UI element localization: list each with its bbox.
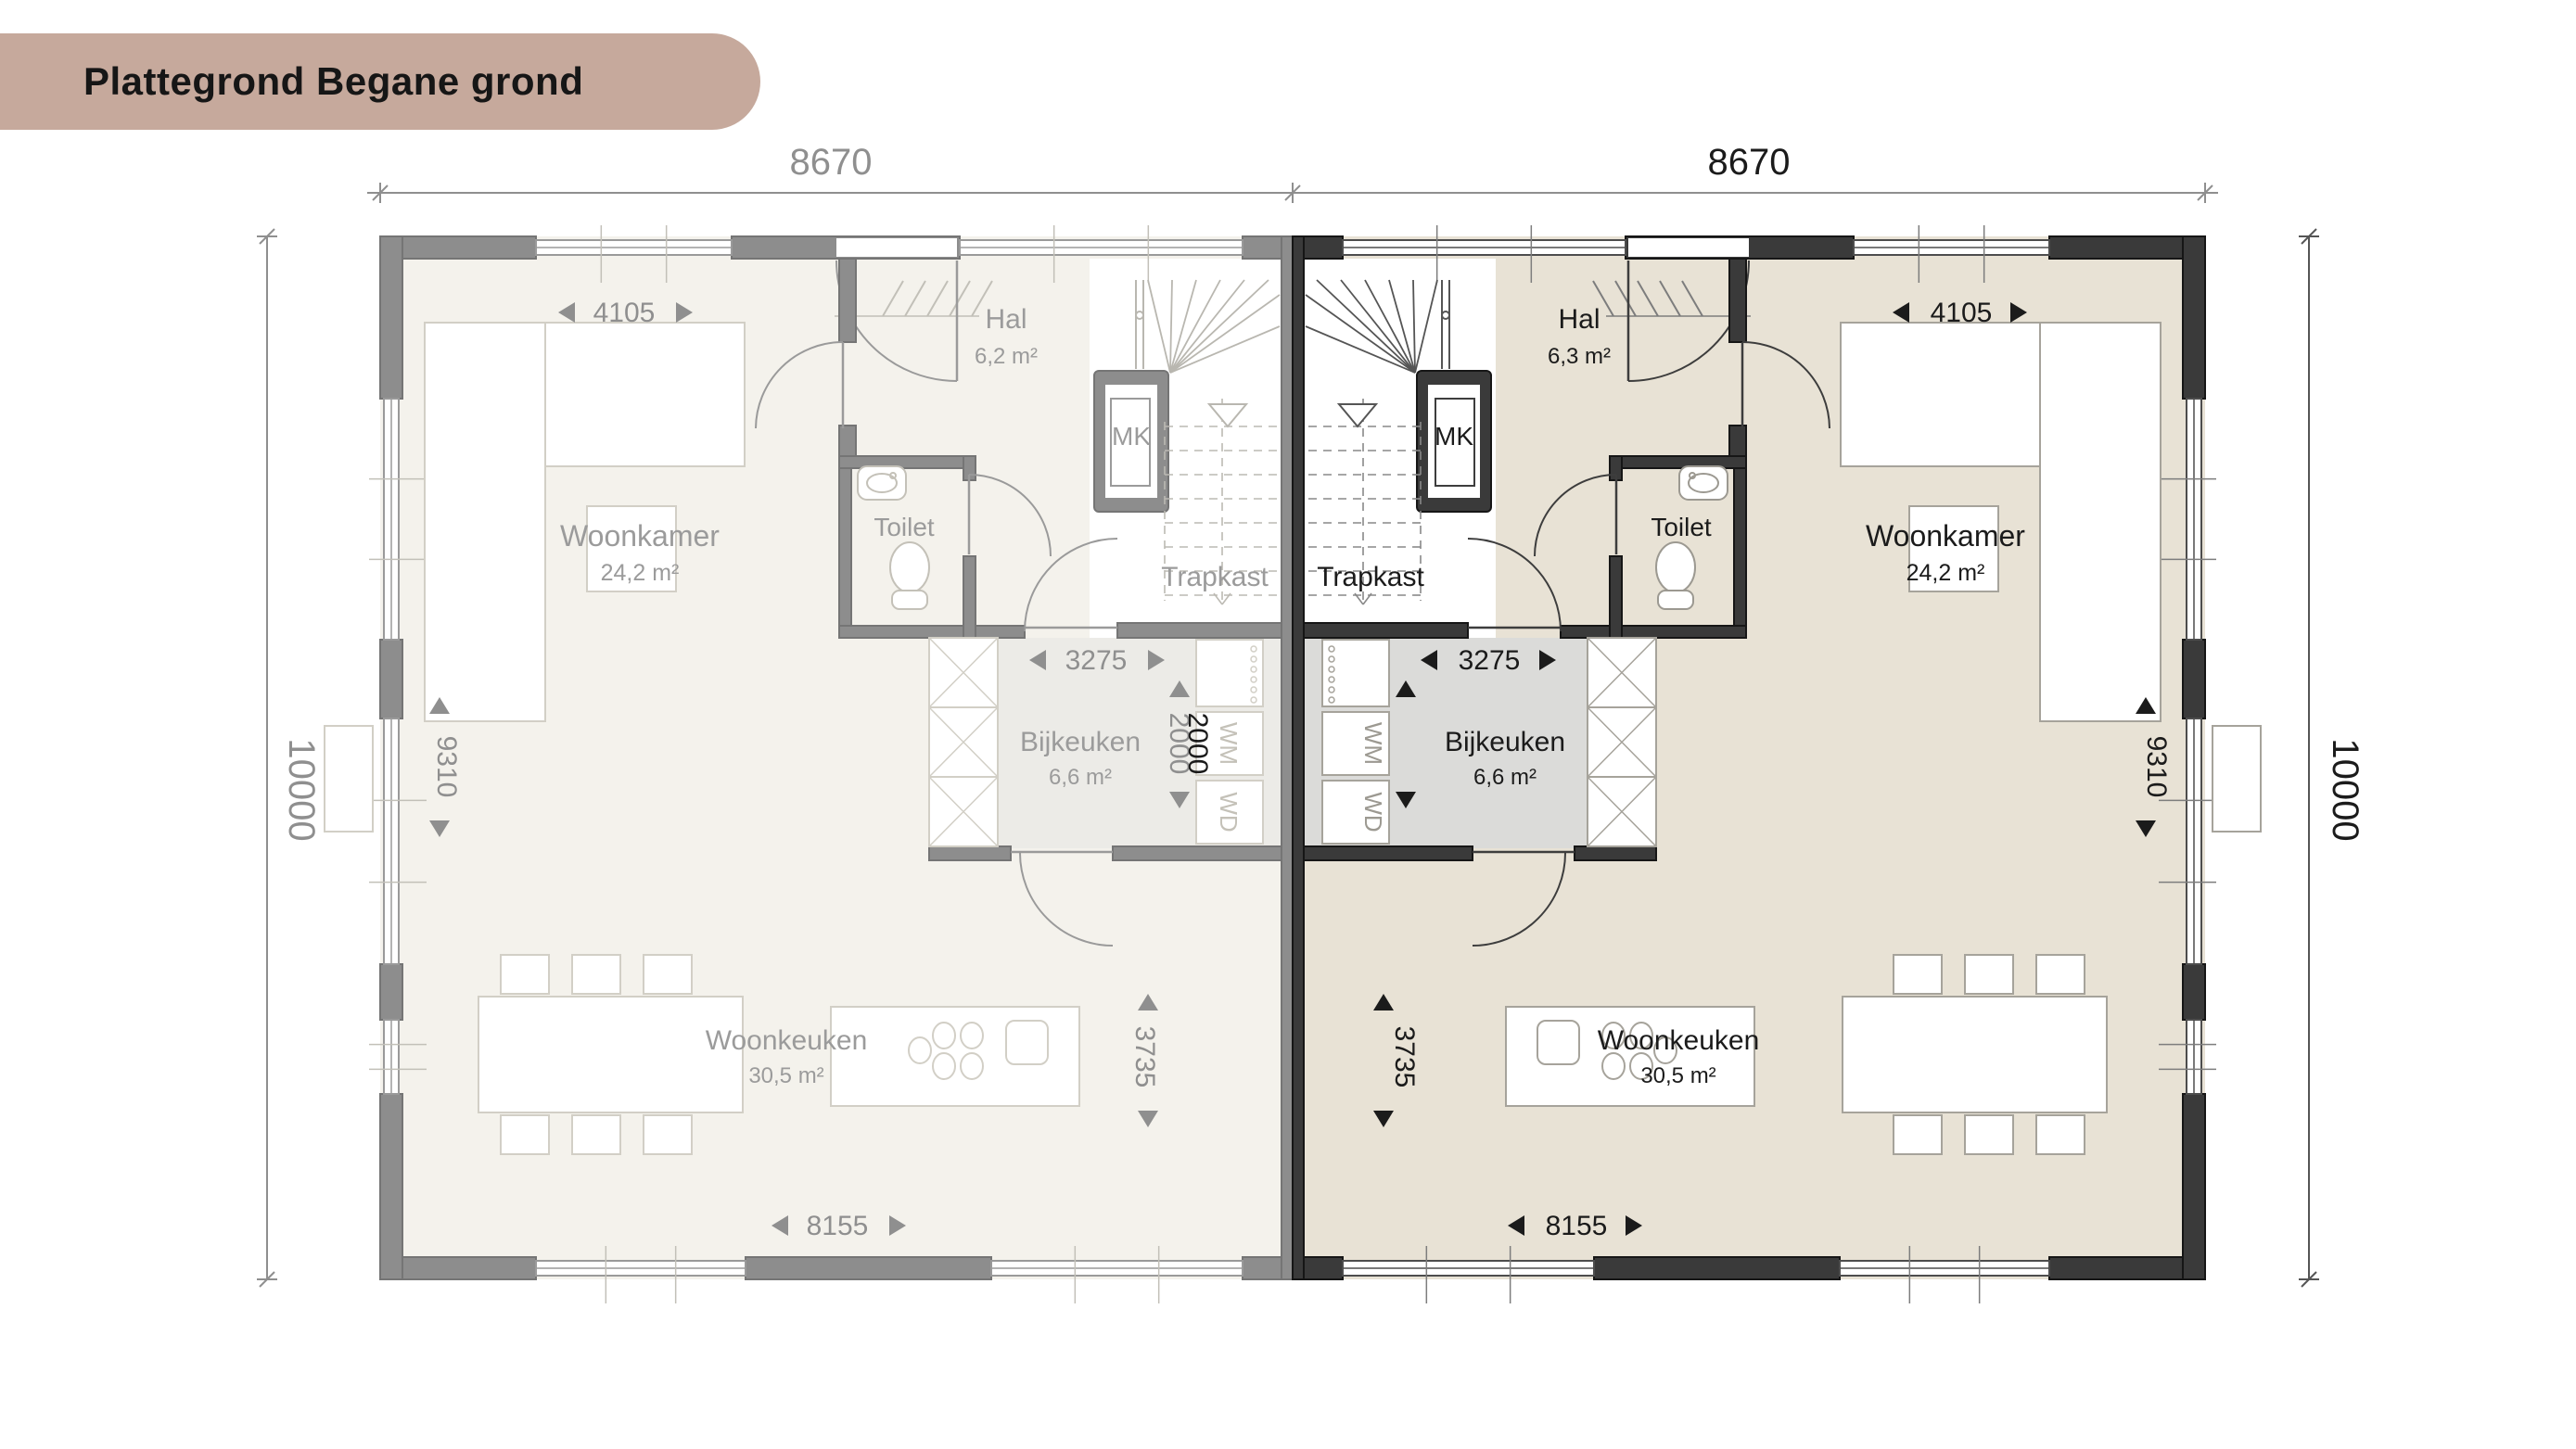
wall-segment bbox=[1594, 1257, 1840, 1279]
left-house: ToiletMKWMWDHal6,2 m²TrapkastWoonkamer24… bbox=[325, 225, 1293, 1303]
wall-segment bbox=[1243, 236, 1282, 259]
wall-segment bbox=[2183, 236, 2205, 399]
wall-segment bbox=[976, 626, 1025, 638]
dim-label: 9310 bbox=[2141, 736, 2172, 798]
wd-label: WD bbox=[1359, 792, 1387, 832]
dining-chair bbox=[1965, 955, 2013, 994]
room-label: Toilet bbox=[1651, 513, 1712, 541]
room-label: Bijkeuken bbox=[1020, 727, 1141, 757]
room-label: Hal bbox=[985, 304, 1027, 335]
wall-segment bbox=[1243, 1257, 1282, 1279]
wd-label: WD bbox=[1215, 792, 1243, 832]
wall-segment bbox=[380, 1094, 402, 1279]
dim-label: 2000 bbox=[1182, 713, 1213, 775]
sofa bbox=[1841, 323, 2040, 466]
floorplan-drawing: 867086701000010000ToiletMKWMWDHal6,2 m²T… bbox=[0, 0, 2576, 1449]
wall-segment bbox=[380, 964, 402, 1020]
room-label: Woonkeuken bbox=[706, 1025, 868, 1056]
wall-segment bbox=[1729, 426, 1746, 456]
party-wall bbox=[1293, 236, 1304, 1279]
dim-label-top-left: 8670 bbox=[790, 142, 873, 183]
dim-label: 8155 bbox=[1546, 1211, 1608, 1241]
wall-segment bbox=[2049, 236, 2205, 259]
room-area-label: 30,5 m² bbox=[1640, 1063, 1715, 1088]
room-label: Bijkeuken bbox=[1445, 727, 1565, 757]
wall-segment bbox=[1729, 259, 1746, 342]
dim-label-left-height: 10000 bbox=[281, 738, 322, 841]
wall-segment bbox=[380, 236, 536, 259]
wall-segment bbox=[963, 556, 976, 638]
wall-segment bbox=[1575, 846, 1656, 860]
dining-chair bbox=[2036, 955, 2085, 994]
room-label: Trapkast bbox=[1161, 562, 1269, 592]
wall-segment bbox=[839, 456, 976, 468]
right-house: ToiletMKWMWDHal6,3 m²TrapkastWoonkamer24… bbox=[1182, 225, 2261, 1303]
sofa bbox=[2040, 323, 2161, 721]
dining-table bbox=[478, 997, 743, 1112]
dining-chair bbox=[572, 1115, 620, 1154]
dining-chair bbox=[1894, 955, 1942, 994]
dim-label: 3275 bbox=[1065, 645, 1128, 676]
page-title: Plattegrond Begane grond bbox=[83, 59, 583, 104]
room-area-label: 30,5 m² bbox=[748, 1063, 823, 1088]
wall-segment bbox=[839, 626, 976, 638]
wall-segment bbox=[380, 236, 402, 399]
wall-segment bbox=[1610, 556, 1622, 638]
room-label: Hal bbox=[1558, 304, 1600, 335]
dining-chair bbox=[501, 955, 549, 994]
wall-segment bbox=[2183, 964, 2205, 1020]
room-label: MK bbox=[1112, 422, 1151, 451]
wall-segment bbox=[1561, 626, 1610, 638]
dim-label: 3275 bbox=[1459, 645, 1521, 676]
sofa bbox=[425, 323, 545, 721]
wall-segment bbox=[1304, 236, 1343, 259]
toilet-wc bbox=[890, 542, 929, 592]
room-area-label: 6,6 m² bbox=[1049, 765, 1112, 790]
room-label: Woonkeuken bbox=[1598, 1025, 1760, 1056]
meter-panel bbox=[1196, 640, 1263, 706]
room-area-label: 6,2 m² bbox=[975, 344, 1038, 369]
wm-label: WM bbox=[1359, 722, 1387, 765]
dining-chair bbox=[644, 955, 692, 994]
dim-label: 8155 bbox=[807, 1211, 869, 1241]
island-sink bbox=[1006, 1021, 1048, 1064]
dining-chair bbox=[644, 1115, 692, 1154]
room-area-label: 24,2 m² bbox=[601, 560, 680, 586]
meter-panel bbox=[1322, 640, 1389, 706]
room-area-label: 6,6 m² bbox=[1473, 765, 1537, 790]
room-label: Woonkamer bbox=[560, 519, 720, 553]
dim-label: 4105 bbox=[1931, 298, 1993, 328]
island-sink bbox=[1537, 1021, 1579, 1064]
toilet-wc bbox=[1656, 542, 1695, 592]
wall-segment bbox=[1304, 1257, 1343, 1279]
wall-segment bbox=[1113, 846, 1282, 860]
dim-label: 9310 bbox=[431, 736, 462, 798]
wall-segment bbox=[2183, 640, 2205, 718]
dining-chair bbox=[2036, 1115, 2085, 1154]
room-area-label: 24,2 m² bbox=[1906, 560, 1985, 586]
wall-segment bbox=[2049, 1257, 2205, 1279]
sofa bbox=[545, 323, 745, 466]
front-door-opening bbox=[836, 238, 957, 257]
title-badge: Plattegrond Begane grond bbox=[0, 33, 760, 130]
exterior-cabinet bbox=[325, 726, 373, 832]
dining-table bbox=[1843, 997, 2107, 1112]
wall-segment bbox=[1610, 456, 1746, 468]
wall-segment bbox=[929, 846, 1011, 860]
wall-segment bbox=[2183, 1094, 2205, 1279]
room-label: Trapkast bbox=[1317, 562, 1424, 592]
toilet-cistern bbox=[892, 591, 927, 609]
dim-label: 3735 bbox=[1389, 1026, 1420, 1088]
front-door-opening bbox=[1628, 238, 1749, 257]
dim-label: 4105 bbox=[593, 298, 656, 328]
dining-chair bbox=[572, 955, 620, 994]
wall-segment bbox=[380, 640, 402, 718]
exterior-cabinet bbox=[2213, 726, 2261, 832]
room-label: Woonkamer bbox=[1866, 519, 2025, 553]
toilet-sink bbox=[1679, 466, 1728, 500]
dining-chair bbox=[501, 1115, 549, 1154]
toilet-cistern bbox=[1658, 591, 1693, 609]
wall-segment bbox=[1117, 623, 1282, 638]
dim-label-top-right: 8670 bbox=[1708, 142, 1791, 183]
floorplan-canvas: Plattegrond Begane grond 867086701000010… bbox=[0, 0, 2576, 1449]
room-label: MK bbox=[1435, 422, 1473, 451]
dining-chair bbox=[1894, 1115, 1942, 1154]
wall-segment bbox=[839, 426, 856, 456]
wall-segment bbox=[1304, 846, 1473, 860]
wall-segment bbox=[380, 1257, 536, 1279]
room-label: Toilet bbox=[874, 513, 935, 541]
dim-label: 3735 bbox=[1129, 1026, 1160, 1088]
wall-segment bbox=[1304, 623, 1468, 638]
dining-chair bbox=[1965, 1115, 2013, 1154]
wall-segment bbox=[839, 259, 856, 342]
wall-segment bbox=[1610, 626, 1746, 638]
toilet-sink bbox=[858, 466, 906, 500]
dim-label-right-height: 10000 bbox=[2325, 738, 2366, 841]
wm-label: WM bbox=[1215, 722, 1243, 765]
room-area-label: 6,3 m² bbox=[1548, 344, 1611, 369]
wall-segment bbox=[746, 1257, 991, 1279]
wall-segment bbox=[839, 468, 851, 638]
party-wall bbox=[1282, 236, 1293, 1279]
wall-segment bbox=[1734, 468, 1746, 638]
